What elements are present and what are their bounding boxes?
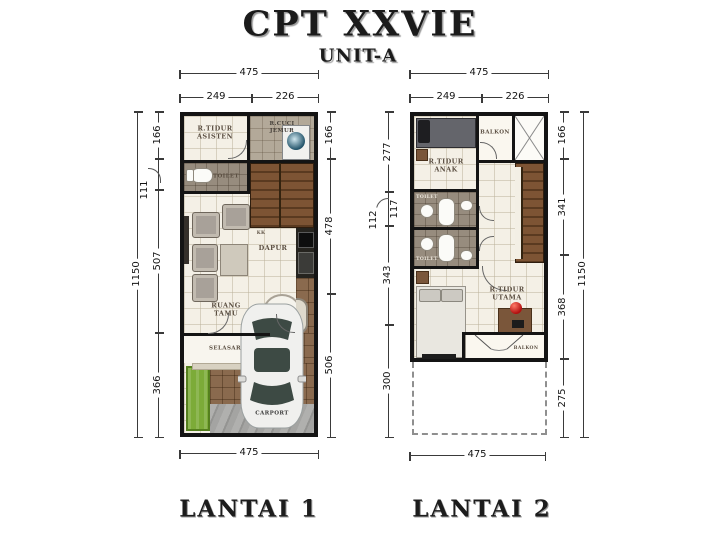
f1-carport-label: CARPORT	[255, 410, 289, 417]
f1-dim-right-c: 506	[325, 352, 335, 377]
pillow	[419, 289, 441, 302]
f2-dim-left-d: 300	[383, 368, 393, 393]
f1-dim-left-total: 1150	[132, 258, 142, 289]
garden-strip	[186, 366, 210, 431]
f1-dim-left-c: 507	[153, 248, 163, 273]
f1-kk-label: KK	[257, 231, 266, 237]
f2-dim-top-left: 249	[433, 92, 458, 102]
f2-toilet-upper-label: TOILET	[416, 195, 438, 201]
wall	[512, 116, 515, 163]
stairs-rail	[515, 167, 523, 259]
f2-dim-bottom: 475	[464, 450, 489, 460]
f1-dim-left-b: 111	[140, 177, 150, 202]
stairs-rail	[279, 163, 281, 228]
f2-walled-area: R.TIDUR ANAK BALKON TO	[410, 112, 548, 362]
f1-stairs	[250, 163, 314, 228]
wall	[476, 160, 512, 163]
page-title: CPT XXVIE	[243, 4, 478, 45]
window-strip	[422, 354, 456, 359]
f2-dim-right-d: 275	[558, 385, 568, 410]
desk-item	[512, 320, 524, 328]
f1-assistant-bedroom-label: R.TIDUR ASISTEN	[197, 125, 233, 142]
armchair	[222, 204, 250, 230]
f1-dim-top-right: 226	[272, 92, 297, 102]
f2-toilet-lower-label: TOILET	[416, 257, 438, 263]
door-arc	[228, 140, 247, 159]
f2-dim-left-c: 343	[383, 262, 393, 287]
sink-icon	[298, 252, 314, 274]
f2-dim-left-b-callout: 112	[369, 207, 379, 232]
toilet-icon	[191, 168, 213, 183]
toilet-icon	[420, 204, 434, 218]
f1-dim-right-b: 478	[325, 213, 335, 238]
f2-balcony-top-label: BALKON	[480, 129, 510, 136]
stove-icon	[298, 232, 314, 248]
f1-toilet-label: TOILET	[213, 173, 239, 180]
f2-dim-left-b: 117	[390, 196, 400, 221]
wall	[462, 332, 544, 335]
f2-dim-top-right: 226	[502, 92, 527, 102]
f2-master-bedroom-label: R.TIDUR UTAMA	[489, 286, 524, 303]
floorplan-canvas: CPT XXVIE UNIT-A 475 249 226 1150 166 11…	[0, 0, 720, 551]
tv-console	[184, 216, 189, 264]
f2-kids-bedroom-label: R.TIDUR ANAK	[428, 158, 463, 175]
f2-dim-top-total: 475	[466, 68, 491, 78]
bathtub-icon	[438, 234, 455, 262]
armchair	[192, 212, 220, 238]
sink-icon	[460, 200, 473, 211]
f1-dim-left-d: 366	[153, 372, 163, 397]
f1-corridor-label: SELASAR	[209, 345, 241, 352]
floor1-name: LANTAI 1	[179, 496, 319, 523]
wall	[476, 192, 479, 266]
wall	[414, 189, 479, 192]
nightstand	[416, 271, 429, 284]
unit-subtitle: UNIT-A	[319, 46, 397, 67]
wall	[184, 191, 250, 194]
f1-laundry-label: R.CUCI JEMUR	[269, 121, 294, 135]
wall	[512, 160, 544, 163]
open-roof-dashed-area	[412, 362, 547, 435]
pillow	[418, 120, 430, 143]
red-lamp-icon	[510, 302, 522, 314]
wall	[462, 332, 465, 358]
f1-dim-bottom: 475	[236, 448, 261, 458]
floor2-name: LANTAI 2	[412, 496, 552, 523]
f2-balcony-bottom-label: BALKON	[514, 346, 539, 352]
f1-dim-right-a: 166	[325, 122, 335, 147]
toilet-tank-icon	[186, 169, 194, 182]
f2-dim-right-total: 1150	[578, 258, 588, 289]
wall	[247, 116, 250, 160]
wall	[476, 116, 479, 192]
f2-dim-right-a: 166	[558, 122, 568, 147]
void-x-icon	[515, 116, 544, 160]
floor1-plan: R.CUCI JEMUR R.TIDUR ASISTEN TOILET KK D…	[180, 112, 318, 437]
floor2-plan: R.TIDUR ANAK BALKON TO	[410, 112, 548, 437]
pillow	[441, 289, 463, 302]
sink-icon	[460, 250, 473, 261]
f1-dim-top-total: 475	[236, 68, 261, 78]
wall	[414, 227, 476, 230]
f1-living-label: RUANG TAMU	[211, 302, 240, 319]
wall	[247, 160, 250, 194]
wall	[184, 333, 270, 336]
door-arc	[479, 206, 494, 221]
door-arc	[479, 236, 494, 251]
armchair	[192, 274, 218, 302]
toilet-icon	[420, 237, 434, 251]
f1-dim-top-left: 249	[203, 92, 228, 102]
f1-dim-left-a: 166	[153, 122, 163, 147]
bathtub-icon	[438, 198, 455, 226]
f2-dim-left-a: 277	[383, 139, 393, 164]
wall	[414, 266, 479, 269]
nightstand	[416, 149, 428, 161]
void-area	[515, 116, 544, 160]
f2-dim-right-b: 341	[558, 194, 568, 219]
armchair	[192, 244, 218, 272]
f1-kitchen-label: DAPUR	[259, 244, 288, 252]
coffee-table	[220, 244, 248, 276]
f2-dim-right-c: 368	[558, 294, 568, 319]
